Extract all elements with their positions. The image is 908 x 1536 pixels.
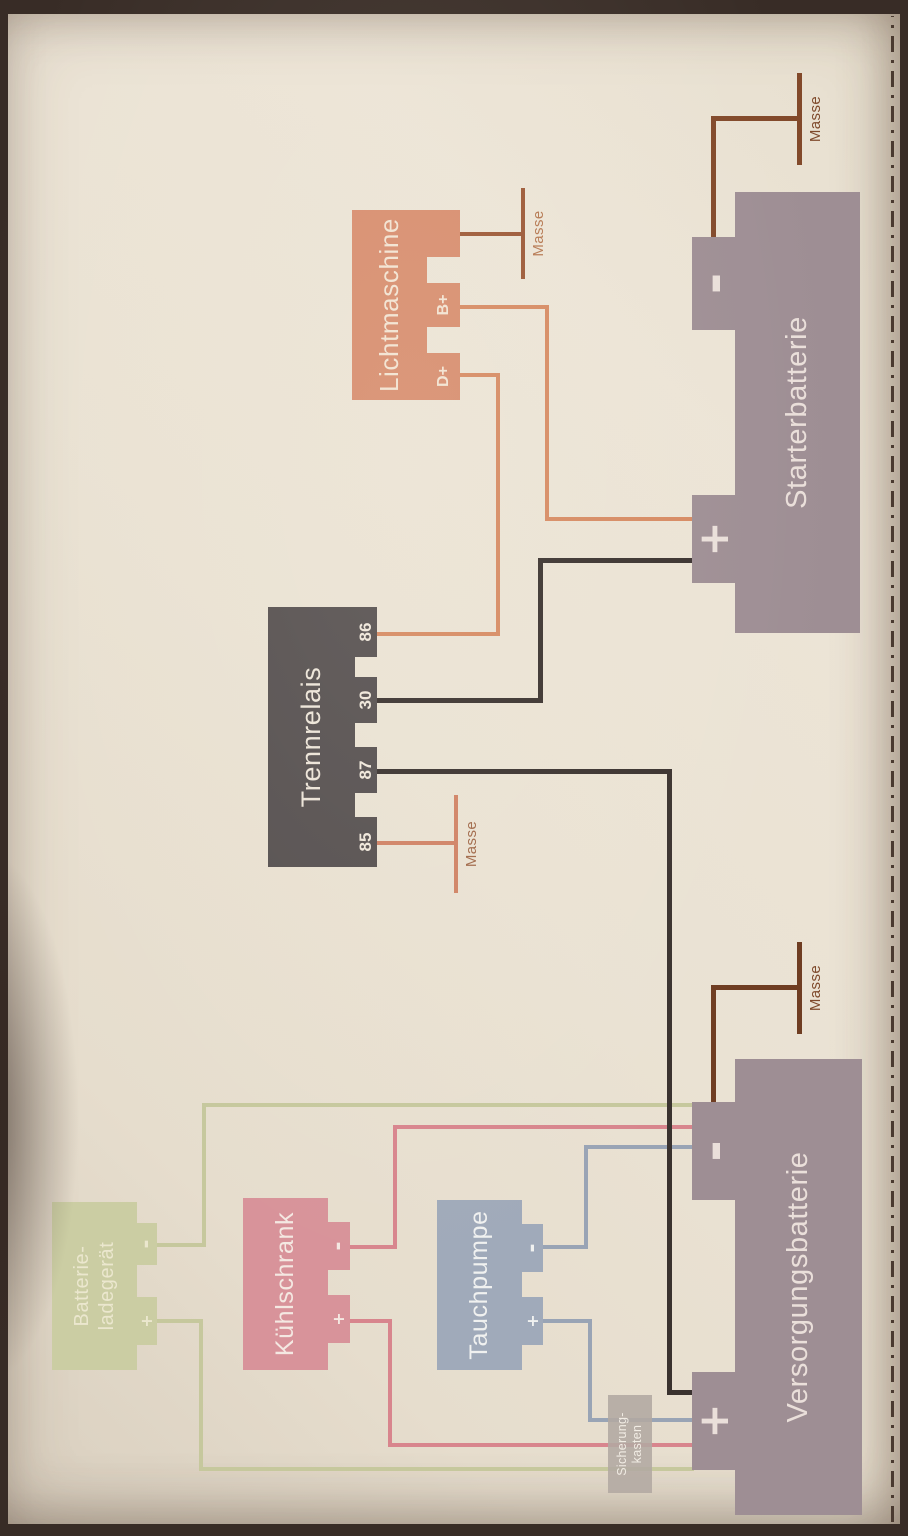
block-title: ladegerät	[95, 1242, 120, 1331]
terminal-fridge-plus: +	[328, 1295, 350, 1343]
wire-87-to-supply	[667, 769, 672, 1395]
block-starterbatterie: Starterbatterie	[735, 192, 860, 633]
terminal-alternator-dplus: D+	[427, 353, 460, 400]
terminal-relay-86: 86	[355, 607, 377, 657]
wire-dplus-to-86	[496, 373, 500, 636]
terminal-label-86: 86	[356, 623, 376, 642]
terminal-charger-plus: +	[137, 1297, 157, 1345]
block-title: Kühlschrank	[271, 1212, 300, 1356]
block-lichtmaschine: Lichtmaschine	[352, 210, 427, 400]
rotated-diagram-canvas: Masse Masse Masse Masse Batterie- ladege…	[0, 0, 908, 1536]
ground-wire	[711, 116, 716, 239]
wire-charger-plus	[199, 1319, 203, 1471]
terminal-supply-plus: +	[692, 1372, 735, 1470]
terminal-charger-minus: -	[137, 1223, 157, 1265]
minus-label: -	[688, 273, 740, 295]
minus-label: -	[688, 1140, 740, 1162]
plus-label: +	[693, 1403, 735, 1438]
wire-87-to-supply	[375, 769, 672, 774]
block-title: Versorgungsbatterie	[782, 1152, 815, 1423]
ground-label: Masse	[530, 188, 547, 279]
ground-wire	[460, 232, 525, 236]
plus-label: +	[525, 1314, 541, 1327]
terminal-pump-plus: +	[522, 1297, 543, 1345]
block-tauchpumpe: Tauchpumpe	[437, 1200, 522, 1370]
wire-pump-minus	[584, 1145, 694, 1149]
terminal-alternator-bplus: B+	[427, 283, 460, 327]
wire-30-to-starter	[538, 558, 543, 703]
wire-dplus-to-86	[375, 632, 500, 636]
ground-label: Masse	[807, 73, 824, 165]
wire-bplus-to-starter	[460, 305, 549, 309]
ground-label: Masse	[807, 942, 824, 1034]
block-versorgungsbatterie: Versorgungsbatterie	[735, 1059, 862, 1515]
wire-fridge-plus	[388, 1319, 392, 1447]
wire-pump-minus	[584, 1145, 588, 1249]
ground-wire	[711, 116, 801, 121]
terminal-alternator-ground	[427, 210, 460, 257]
wire-30-to-starter	[375, 698, 543, 703]
wire-charger-minus	[202, 1103, 206, 1247]
block-kuehlschrank: Kühlschrank	[243, 1198, 328, 1370]
ground-wire	[711, 985, 716, 1104]
terminal-label-87: 87	[356, 761, 376, 780]
block-title: Batterie-	[70, 1246, 95, 1327]
block-sicherungskasten: Sicherung- kasten	[608, 1395, 652, 1493]
ground-label: Masse	[463, 795, 480, 893]
terminal-relay-30: 30	[355, 677, 377, 723]
ground-bar	[521, 188, 525, 279]
ground-bar	[797, 73, 802, 165]
minus-label: -	[136, 1239, 158, 1248]
wire-fridge-minus	[393, 1125, 397, 1249]
ground-bar	[454, 795, 458, 893]
wire-pump-plus	[588, 1319, 592, 1422]
minus-label: -	[328, 1241, 350, 1250]
plus-label: +	[331, 1312, 347, 1325]
wire-fridge-minus	[393, 1125, 694, 1129]
wire-pump-minus	[543, 1245, 588, 1249]
terminal-label-85: 85	[356, 833, 376, 852]
terminal-starter-plus: +	[692, 495, 735, 583]
wire-dplus-to-86	[460, 373, 500, 377]
block-title: Tauchpumpe	[465, 1210, 494, 1359]
plus-label: +	[139, 1314, 155, 1327]
wire-fridge-minus	[350, 1245, 397, 1249]
block-batterieladegeraet: Batterie- ladegerät	[52, 1202, 137, 1370]
terminal-starter-minus: -	[692, 237, 735, 330]
terminal-pump-minus: -	[522, 1224, 543, 1272]
page-border-dashdot	[891, 16, 894, 1522]
wire-bplus-to-starter	[545, 517, 694, 521]
terminal-relay-85: 85	[355, 817, 377, 867]
wire-30-to-starter	[538, 558, 694, 563]
wire-charger-minus	[157, 1243, 206, 1247]
photo-of-wiring-diagram: Masse Masse Masse Masse Batterie- ladege…	[0, 0, 908, 1536]
terminal-fridge-minus: -	[328, 1222, 350, 1270]
ground-wire	[375, 841, 458, 845]
terminal-label-bplus: B+	[435, 295, 453, 316]
block-trennrelais: Trennrelais	[268, 607, 355, 867]
wire-charger-plus	[157, 1319, 203, 1323]
ground-bar	[797, 942, 802, 1034]
wire-bplus-to-starter	[545, 305, 549, 521]
wire-charger-minus	[202, 1103, 694, 1107]
block-title: Trennrelais	[296, 667, 327, 808]
block-title: Lichtmaschine	[374, 218, 405, 392]
terminal-supply-minus: -	[692, 1102, 735, 1200]
terminal-label-30: 30	[356, 691, 376, 710]
terminal-label-dplus: D+	[435, 366, 453, 387]
block-title: Starterbatterie	[781, 316, 814, 509]
terminal-relay-87: 87	[355, 747, 377, 793]
plus-label: +	[693, 521, 735, 556]
block-title: kasten	[630, 1425, 646, 1464]
wire-pump-plus	[543, 1319, 592, 1323]
block-title: Sicherung-	[615, 1412, 631, 1475]
wire-fridge-plus	[350, 1319, 392, 1323]
ground-wire	[711, 985, 801, 990]
minus-label: -	[522, 1243, 544, 1252]
